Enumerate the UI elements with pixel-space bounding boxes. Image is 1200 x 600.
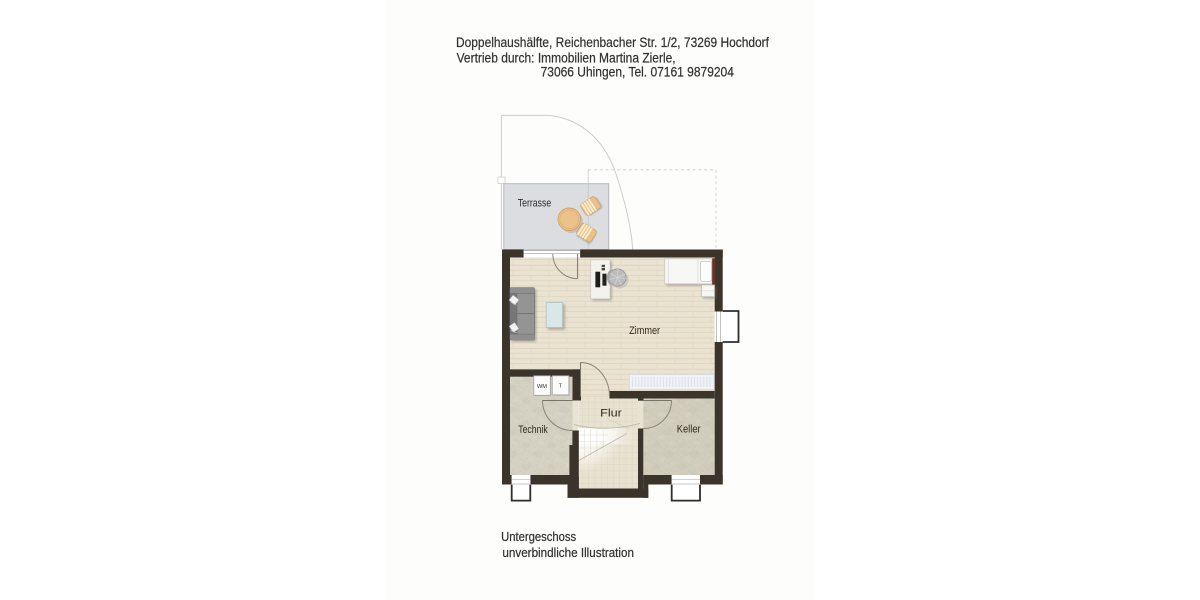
svg-text:unverbindliche Illustration: unverbindliche Illustration [502, 545, 634, 560]
svg-text:Terrasse: Terrasse [518, 197, 552, 209]
svg-text:Keller: Keller [677, 423, 701, 435]
svg-text:Technik: Technik [518, 424, 548, 436]
svg-text:Flur: Flur [600, 408, 622, 420]
svg-text:WM: WM [537, 384, 547, 390]
svg-text:T: T [559, 384, 563, 390]
svg-text:Doppelhaushälfte, Reichenbache: Doppelhaushälfte, Reichenbacher Str. 1/2… [456, 35, 769, 50]
svg-text:Vertrieb durch: Immobilien Mar: Vertrieb durch: Immobilien Martina Zierl… [457, 50, 676, 65]
svg-text:Zimmer: Zimmer [629, 325, 660, 337]
svg-text:73066 Uhingen, Tel. 07161 9879: 73066 Uhingen, Tel. 07161 9879204 [541, 65, 735, 80]
svg-text:Untergeschoss: Untergeschoss [501, 529, 576, 544]
